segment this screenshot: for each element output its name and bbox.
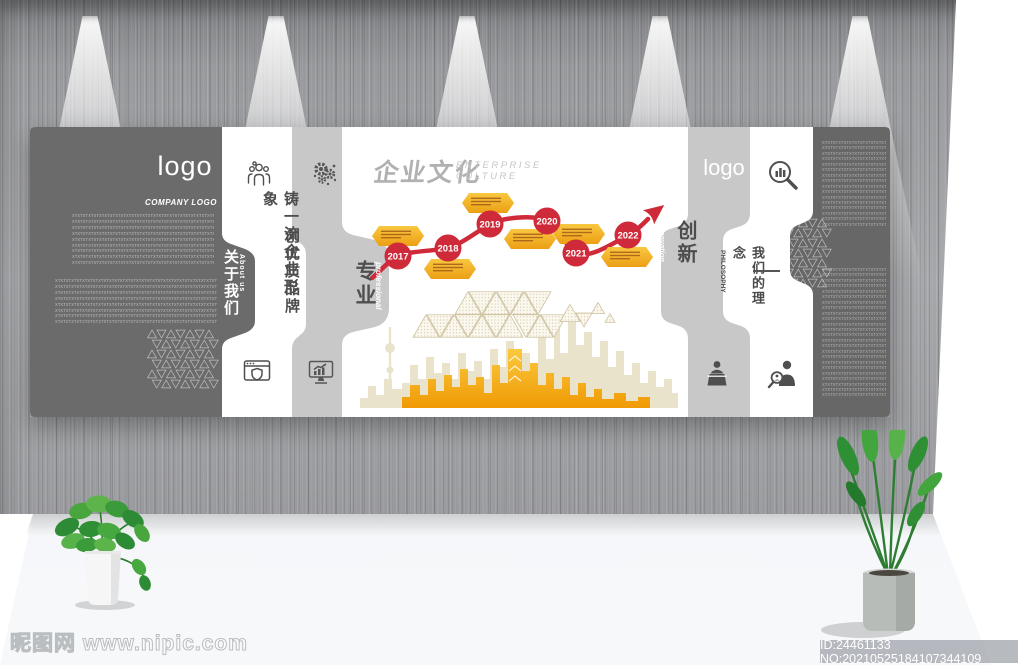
year-label: 2019 [479,220,500,231]
timeline-node: 2018 [435,235,462,262]
watermark-site: 昵图网 www.nipic.com [10,627,248,657]
potted-plant-left [45,485,160,610]
slogan-create-quality-brand: 创优质品牌 [281,228,302,316]
philosophy-divider [753,270,780,272]
year-label: 2020 [536,217,557,228]
plant-pot-left [85,551,121,605]
potted-plant-right [818,430,943,640]
timeline-node: 2019 [477,211,504,238]
timeline-tag [601,247,653,267]
placeholder-text-block: XTXTXTXTXTXTXTXTXTXTXTXTXTXTXTXTXTXTXTXT… [72,214,214,269]
browser-shield-icon [242,357,272,385]
timeline-node: 2017 [385,243,412,270]
philosophy-label-cn: 我们的理念 [729,246,767,314]
person-search-icon [766,357,800,389]
philosophy-label-en: PHILOSOPHY [719,250,726,304]
plant-pot-right [863,569,915,632]
team-icon [244,159,274,189]
monitor-chart-icon [306,359,336,385]
company-logo-caption: COMPANY LOGO [136,198,226,207]
about-us-label-en: About us [238,254,245,316]
placeholder-text-block: XTXTXTXTXTXTXTXTXTXTXTXTXTXTXTXTXTXTXTXT… [822,141,886,231]
professional-label-en: professional [374,262,383,318]
timeline-tag [462,193,514,213]
innovation-label-cn: 创新 [671,220,700,270]
watermark-id-badge: ID:24461133 NO:20210525184107344109 [820,640,1018,663]
page-title-en: ENTERPRISE CULTURE [456,160,542,182]
plant-leaves [833,430,943,529]
gears-icon [309,159,339,189]
year-label: 2018 [437,244,458,255]
timeline-node: 2021 [563,240,590,267]
timeline-node: 2020 [534,208,561,235]
timeline-node: 2022 [615,222,642,249]
company-logo-text-right: logo [696,155,752,181]
podium-speaker-icon [702,357,732,387]
innovation-label-en: Innovation [658,224,667,286]
placeholder-text-block: XTXTXTXTXTXTXTXTXTXTXTXTXTXTXTXTXTXTXTXT… [55,279,217,329]
magnifier-chart-icon [765,157,801,193]
year-label: 2017 [387,252,408,263]
company-logo-text-left: logo [150,151,220,182]
timeline-tag [424,259,476,279]
year-label: 2022 [617,231,638,242]
year-label: 2021 [565,249,587,260]
culture-wall-panel: 2017 2018 2019 2020 2021 2022 logo COMPA… [30,127,890,417]
placeholder-text-block: XTXTXTXTXTXTXTXTXTXTXTXTXTXTXTXTXTXTXTXT… [822,268,886,401]
